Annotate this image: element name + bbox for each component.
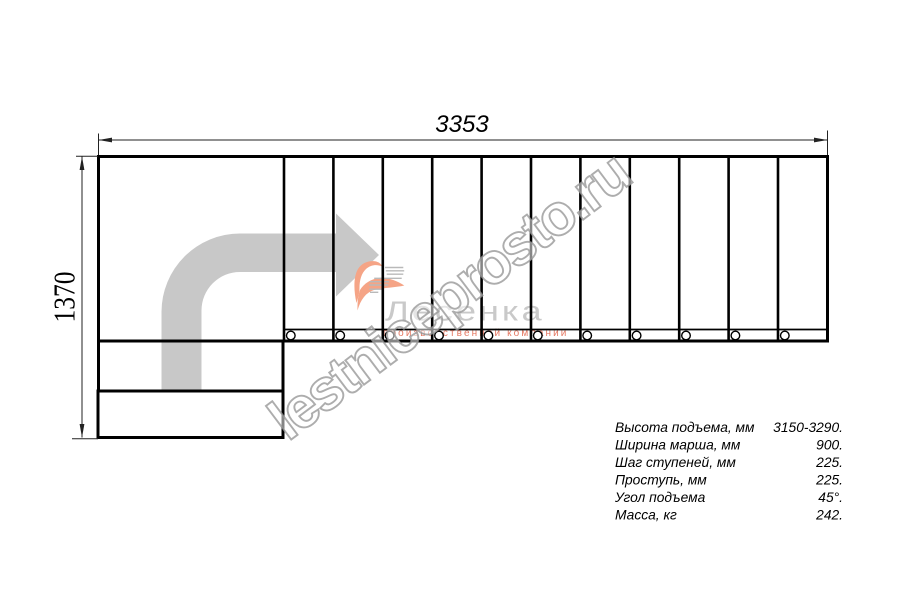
svg-text:225.: 225. xyxy=(815,473,843,488)
svg-text:45°.: 45°. xyxy=(818,490,843,505)
svg-text:242.: 242. xyxy=(815,508,843,523)
svg-text:Масса, кг: Масса, кг xyxy=(615,508,677,523)
svg-text:900.: 900. xyxy=(816,438,843,453)
svg-text:3353: 3353 xyxy=(435,111,489,138)
svg-text:Ширина марша, мм: Ширина марша, мм xyxy=(615,438,741,453)
svg-text:1370: 1370 xyxy=(47,272,82,323)
svg-text:Высота подъема, мм: Высота подъема, мм xyxy=(615,420,755,435)
svg-text:Шаг ступеней, мм: Шаг ступеней, мм xyxy=(615,455,736,470)
svg-text:Проступь, мм: Проступь, мм xyxy=(615,473,707,488)
svg-text:3150-3290.: 3150-3290. xyxy=(773,420,843,435)
svg-text:lestniceprosto.ru: lestniceprosto.ru xyxy=(257,140,642,453)
svg-text:225.: 225. xyxy=(815,455,843,470)
svg-text:Угол подъема: Угол подъема xyxy=(614,490,706,505)
